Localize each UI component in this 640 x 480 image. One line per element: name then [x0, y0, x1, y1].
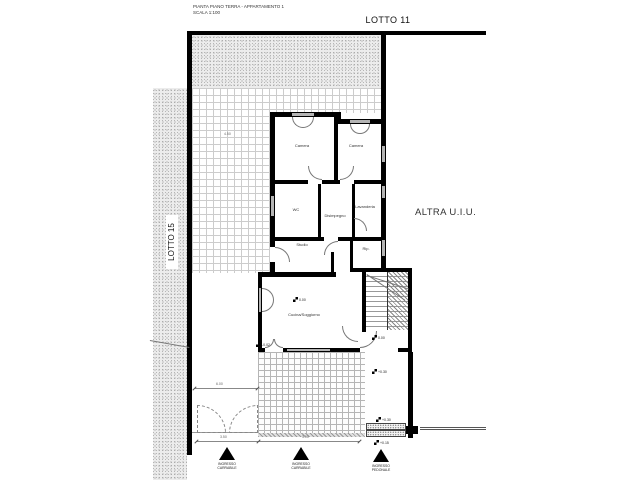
window-leaf-arc: [350, 124, 360, 134]
wall-h1-c: [354, 180, 381, 184]
level-pin-icon: [293, 297, 298, 302]
entrance-label-line: CARRABILE: [205, 466, 249, 470]
wall-between-bedrooms: [334, 117, 338, 180]
door-arc-camera1: [308, 166, 322, 180]
room-label-ripostiglio: Rip.: [356, 247, 376, 251]
stair-wall-right: [408, 272, 412, 352]
level-pin-icon: [372, 335, 377, 340]
entrance-label-line: CARRABILE: [279, 466, 323, 470]
floor-plan-canvas: PIANTA PIANO TERRA - APPARTAMENTO 1 SCAL…: [0, 0, 640, 480]
entrance-label-line: PEDONALE: [359, 468, 403, 472]
altra-uiu-label: ALTRA U.I.U.: [415, 207, 476, 218]
driveway-dimension: 6.00: [216, 382, 223, 386]
gate-leaf-arc-right: [229, 405, 258, 433]
window-leaf-arc: [360, 124, 370, 134]
entrance-triangle-pedonale: [373, 449, 389, 462]
wall-h2-b: [338, 237, 381, 241]
window-right-3: [381, 240, 386, 256]
level-pin-icon: [256, 342, 261, 347]
gravel-area-top: [192, 35, 381, 88]
gravel-band-left: [153, 88, 187, 480]
door-arc-vestibule: [342, 326, 358, 342]
patio-edge-strip: [258, 433, 365, 437]
dim-tick: [357, 439, 361, 443]
room-label-camera2: Camera: [334, 144, 378, 148]
room-label-camera1: Camera: [280, 144, 324, 148]
patio-tiles: [258, 352, 365, 433]
entry-step-2: [366, 430, 406, 437]
level-value: +0.30: [378, 370, 387, 374]
entrance-label-carrabile-1: INGRESSO CARRABILE: [205, 462, 249, 471]
living-wall-top: [258, 272, 336, 277]
level-marker-step-bottom: +0.15: [374, 440, 389, 445]
lotto-15-label: LOTTO 15: [166, 215, 178, 269]
lotto-11-label: LOTTO 11: [358, 15, 418, 25]
entrance-label-carrabile-2: INGRESSO CARRABILE: [279, 462, 323, 471]
entrance-label-pedonale: INGRESSO PEDONALE: [359, 464, 403, 473]
wall-studio-corridor: [331, 252, 334, 272]
gate-right-dimension: 3.00: [302, 435, 309, 439]
door-arc-lavanderia: [354, 218, 367, 231]
level-marker-porch: +0.30: [372, 369, 387, 374]
door-arc-studio-ext: [275, 247, 290, 262]
drawing-title-block: PIANTA PIANO TERRA - APPARTAMENTO 1 SCAL…: [193, 4, 284, 15]
gate-leaf-arc-left: [197, 405, 226, 433]
wall-wc-disimpegno: [318, 184, 321, 237]
wall-h1-a: [275, 180, 308, 184]
garden-dimension: 4.50: [224, 132, 231, 136]
room-label-studio: Studio: [290, 243, 314, 247]
title-line2: SCALA 1:100: [193, 10, 284, 16]
level-value: -0.02: [262, 343, 270, 347]
level-marker-patio: -0.02: [256, 342, 270, 347]
room-label-wc: WC: [285, 208, 307, 212]
fence-line-right: [420, 427, 486, 430]
dimension-line-bottom: [196, 441, 360, 442]
room-label-disimpegno: Disimpegno: [318, 214, 352, 218]
level-pin-icon: [372, 369, 377, 374]
window-leaf-arc: [303, 117, 314, 128]
door-leaf-arc: [274, 339, 283, 348]
level-value: 0.00: [378, 336, 385, 340]
level-marker-ingresso: 0.00: [372, 335, 385, 340]
wall-h2-a: [275, 237, 324, 241]
level-marker-soggiorno: 0.00: [293, 297, 306, 302]
window-right-1: [381, 146, 386, 162]
garden-tiles-left: [192, 88, 270, 273]
level-pin-icon: [374, 440, 379, 445]
room-label-lavanderia: Lavanderia: [350, 205, 380, 209]
entrance-triangle-carrabile-2: [293, 447, 309, 460]
staircase-hatch: [387, 272, 408, 330]
entry-step-1: [366, 423, 406, 430]
dimension-line-driveway: [194, 388, 258, 389]
boundary-wall-right-upper: [381, 35, 386, 113]
window-leaf-arc: [262, 300, 274, 312]
entrance-triangle-carrabile-1: [219, 447, 235, 460]
level-value: 0.00: [299, 298, 306, 302]
title-line1: PIANTA PIANO TERRA - APPARTAMENTO 1: [193, 4, 284, 10]
room-label-soggiorno: Cucina/Soggiorno: [274, 313, 334, 317]
window-right-2: [381, 186, 386, 198]
level-value: +0.15: [380, 441, 389, 445]
level-value: +0.30: [382, 418, 391, 422]
window-leaf-arc: [292, 117, 303, 128]
gate-left-dimension: 3.50: [220, 435, 227, 439]
level-pin-icon: [376, 417, 381, 422]
level-marker-step-top: +0.30: [376, 417, 391, 422]
door-arc-camera2: [340, 166, 354, 180]
wall-h1-b: [322, 180, 340, 184]
window-leaf-arc: [262, 288, 274, 300]
window-wc: [270, 196, 275, 216]
